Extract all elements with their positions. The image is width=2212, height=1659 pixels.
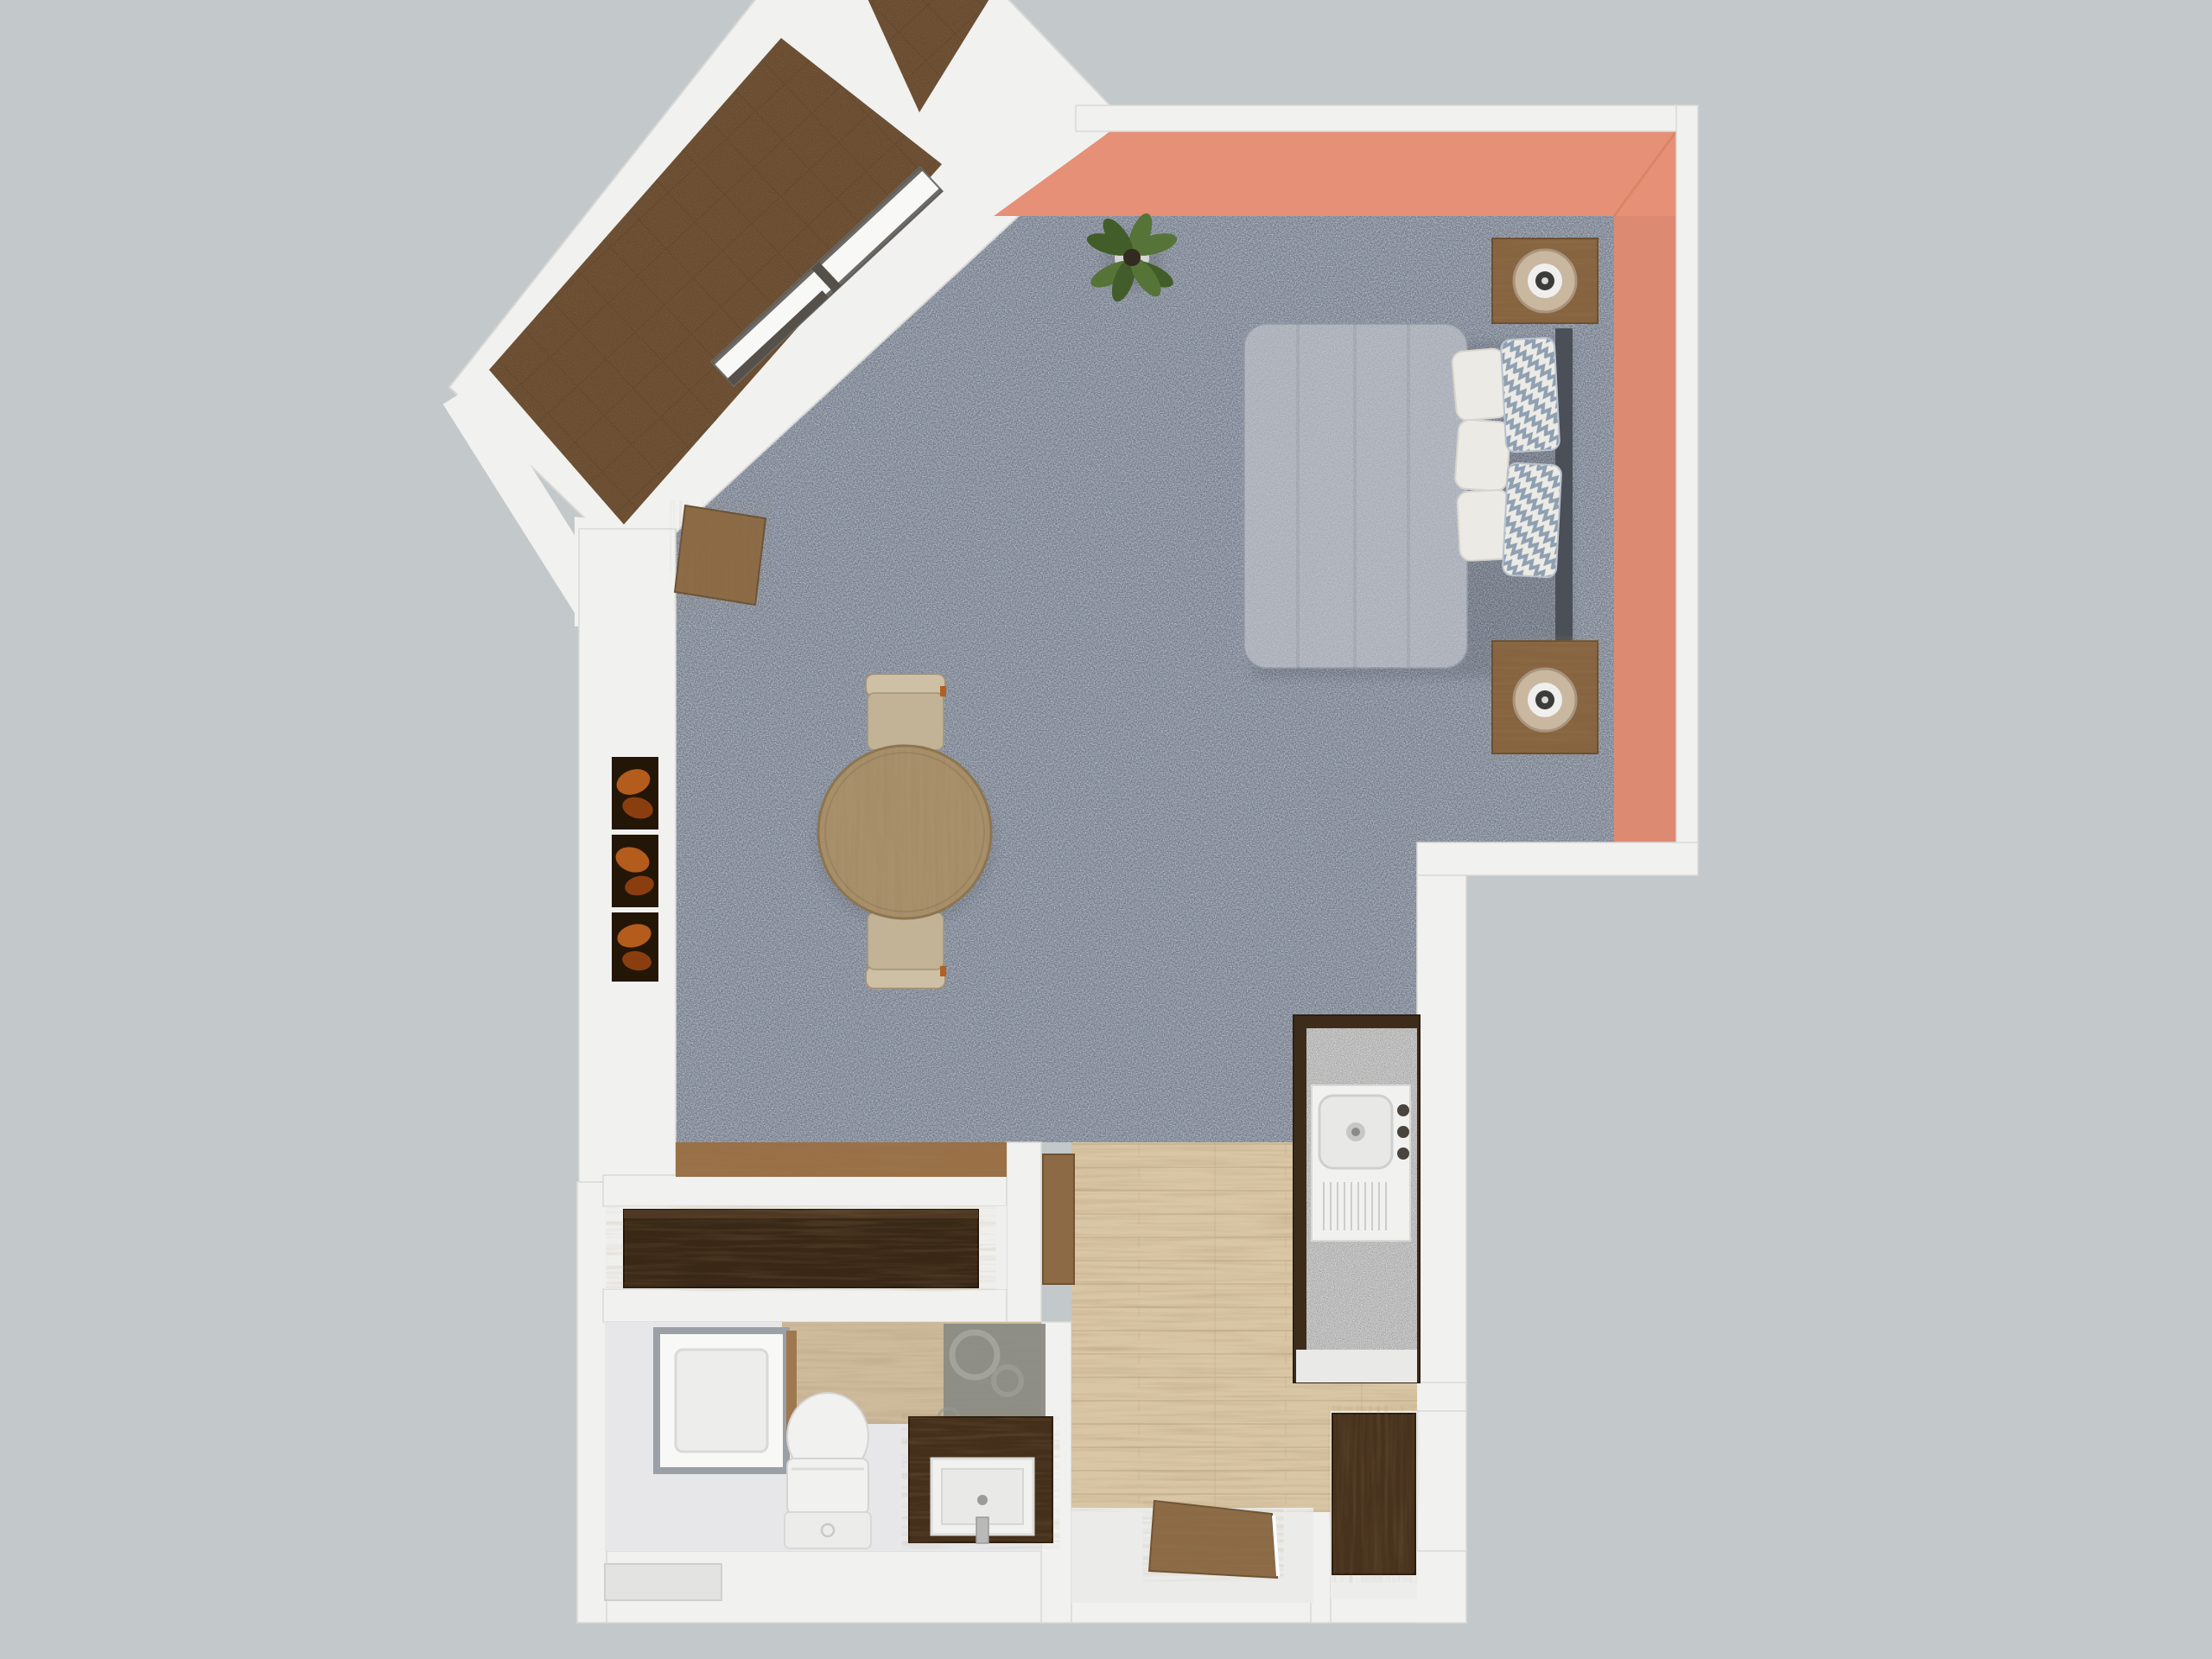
bathroom-door-open [1043, 1154, 1074, 1284]
toilet-tank [785, 1512, 871, 1548]
wall-art-2 [612, 835, 658, 907]
pillow-chevron-2 [1503, 462, 1562, 577]
wall-bathroom-top [603, 1289, 1007, 1322]
dining-chair-top [866, 674, 946, 750]
decor-panel [938, 1324, 1046, 1429]
entry-door-open [1149, 1501, 1278, 1578]
vanity-faucet [976, 1517, 988, 1543]
wall-art-3 [612, 912, 658, 982]
chair-leg-accent [940, 686, 946, 696]
nightstand-bottom [1492, 641, 1598, 753]
vanity-drain [977, 1495, 988, 1505]
lamp-finial [1541, 696, 1548, 703]
hall-closet-dresser [624, 1210, 978, 1287]
knob-2 [1397, 1126, 1409, 1138]
toilet-seat-base [787, 1459, 868, 1514]
wall-top [1076, 105, 1698, 131]
shower [657, 1331, 797, 1471]
wall-right-lower [1417, 875, 1466, 1623]
wall-closet-top [603, 1175, 1007, 1206]
wall-right [1676, 105, 1698, 874]
dining-chair-bottom [866, 912, 946, 988]
wall-left-lower [577, 1182, 607, 1623]
toilet [785, 1393, 871, 1548]
wall-niche [605, 1564, 721, 1600]
chair-leg-accent [940, 966, 946, 976]
floor-plan-render: Top-down 3D rendered floor plan of a stu… [0, 0, 2212, 1659]
shower-door-panel [676, 1350, 767, 1452]
chair-seat [868, 693, 944, 750]
pillow-white-2 [1454, 419, 1510, 492]
counter-base-front [1296, 1350, 1417, 1382]
floor-plan-stage: Top-down 3D rendered floor plan of a stu… [0, 0, 2212, 1659]
entry-closet-wardrobe [1332, 1414, 1415, 1574]
chair-seat [868, 912, 944, 969]
wall-art-set [612, 757, 658, 982]
lamp-finial [1541, 277, 1548, 284]
plant-core [1123, 249, 1141, 266]
coral-right-shade [1614, 216, 1676, 845]
sink-drain [1351, 1128, 1360, 1136]
pillow-chevron-1 [1501, 337, 1560, 452]
knob-1 [1397, 1104, 1409, 1116]
coral-wall-top [994, 131, 1676, 216]
balcony-door-open [675, 505, 766, 605]
wall-art-1 [612, 757, 658, 829]
kitchen-counter [1294, 1015, 1426, 1382]
knob-3 [1397, 1147, 1409, 1160]
dresser-grain [624, 1210, 978, 1287]
nightstand-top [1492, 238, 1598, 323]
wardrobe-grain [1332, 1414, 1415, 1574]
bed-group [1236, 315, 1573, 678]
vanity [909, 1417, 1052, 1543]
wall-closet-right [1007, 1142, 1041, 1322]
pillow-white-1 [1452, 348, 1510, 422]
wall-bedroom-step [1417, 842, 1698, 875]
